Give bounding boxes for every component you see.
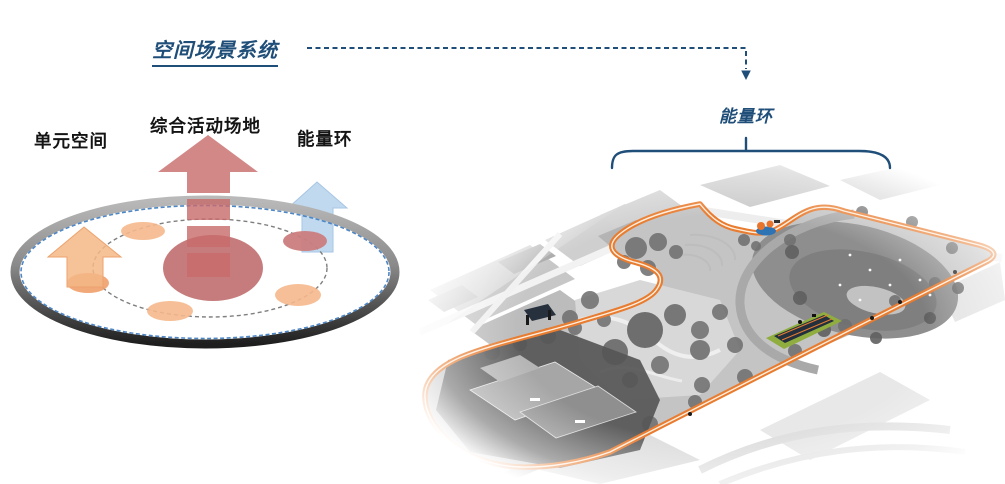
node-orange	[121, 222, 165, 240]
red-arrow-stem-segment	[187, 199, 230, 220]
orange-up-arrow-icon	[48, 227, 121, 287]
node-orange	[147, 301, 193, 321]
page-title: 空间场景系统	[152, 34, 278, 67]
page-title-text: 空间场景系统	[152, 34, 278, 67]
slide-canvas: 空间场景系统 单元空间 综合活动场地 能量环 能量环	[0, 0, 1005, 484]
label-energy-ring: 能量环	[297, 126, 353, 151]
masterplan-map	[415, 160, 1005, 484]
pavilion-detail	[774, 220, 780, 223]
node-orange	[275, 284, 321, 306]
red-arrowhead-icon	[158, 135, 258, 172]
label-unit-space: 单元空间	[34, 128, 108, 153]
red-arrow-stem-segment	[187, 253, 230, 277]
red-arrow-stem-segment	[187, 226, 230, 247]
label-activity-ground: 综合活动场地	[150, 113, 261, 138]
map-label-energy-ring: 能量环	[719, 102, 773, 127]
node-red	[283, 231, 327, 251]
connector-arrowhead-icon	[741, 71, 751, 81]
pavilion-canopy	[767, 221, 774, 228]
dashed-connector-line	[307, 48, 746, 69]
unit-space-arrow	[48, 227, 121, 293]
red-arrow-stem-segment	[187, 172, 230, 193]
pavilion-canopy	[757, 222, 765, 230]
